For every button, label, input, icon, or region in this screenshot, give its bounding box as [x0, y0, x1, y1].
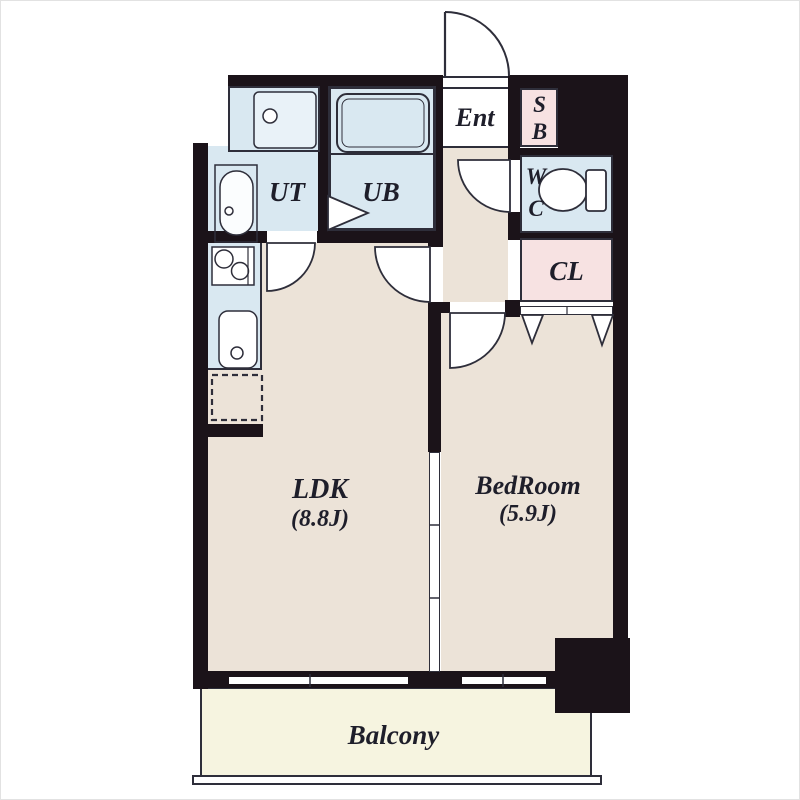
- label-closet: CL: [520, 256, 613, 287]
- entrance-door-arc: [445, 12, 509, 76]
- label-utility: UT: [249, 177, 325, 208]
- stove-burner-2: [232, 263, 249, 280]
- washing-machine-pan-icon: [254, 92, 316, 148]
- label-shoe-box-line2: B: [521, 118, 558, 145]
- stove-burner-1: [215, 250, 233, 268]
- sink-drain: [231, 347, 243, 359]
- label-balcony: Balcony: [246, 720, 541, 751]
- label-wc: W C: [523, 161, 549, 225]
- bathtub-inner-line: [342, 99, 424, 147]
- closet-hanger-mark-right: [592, 315, 613, 345]
- label-shoe-box-line1: S: [521, 91, 558, 118]
- refrigerator-space-icon: [212, 375, 262, 420]
- label-wc-line1: W: [523, 161, 549, 193]
- label-wc-line2: C: [523, 193, 549, 225]
- label-entrance: Ent: [440, 103, 510, 133]
- label-bedroom: BedRoom (5.9J): [433, 471, 623, 528]
- label-unit-bath: UB: [343, 177, 419, 208]
- bathtub-icon: [337, 94, 429, 152]
- closet-hanger-mark-left: [522, 315, 543, 343]
- ldk-door-arc: [375, 247, 430, 302]
- toilet-tank-icon: [586, 170, 606, 211]
- label-ldk-size: (8.8J): [225, 506, 415, 534]
- label-ldk: LDK (8.8J): [225, 474, 415, 534]
- bedroom-door-arc: [450, 313, 505, 368]
- label-bedroom-name: BedRoom: [433, 471, 623, 501]
- label-ldk-name: LDK: [225, 474, 415, 506]
- utility-door-arc: [267, 243, 315, 291]
- washer-drain: [263, 109, 277, 123]
- label-shoe-box: S B: [521, 91, 558, 145]
- vanity-drain: [225, 207, 233, 215]
- fixtures-layer: [0, 0, 800, 800]
- wc-door-arc: [458, 160, 510, 212]
- label-bedroom-size: (5.9J): [433, 501, 623, 529]
- floor-plan: Ent S B W C CL UT UB LDK (8.8J) BedRoom …: [0, 0, 800, 800]
